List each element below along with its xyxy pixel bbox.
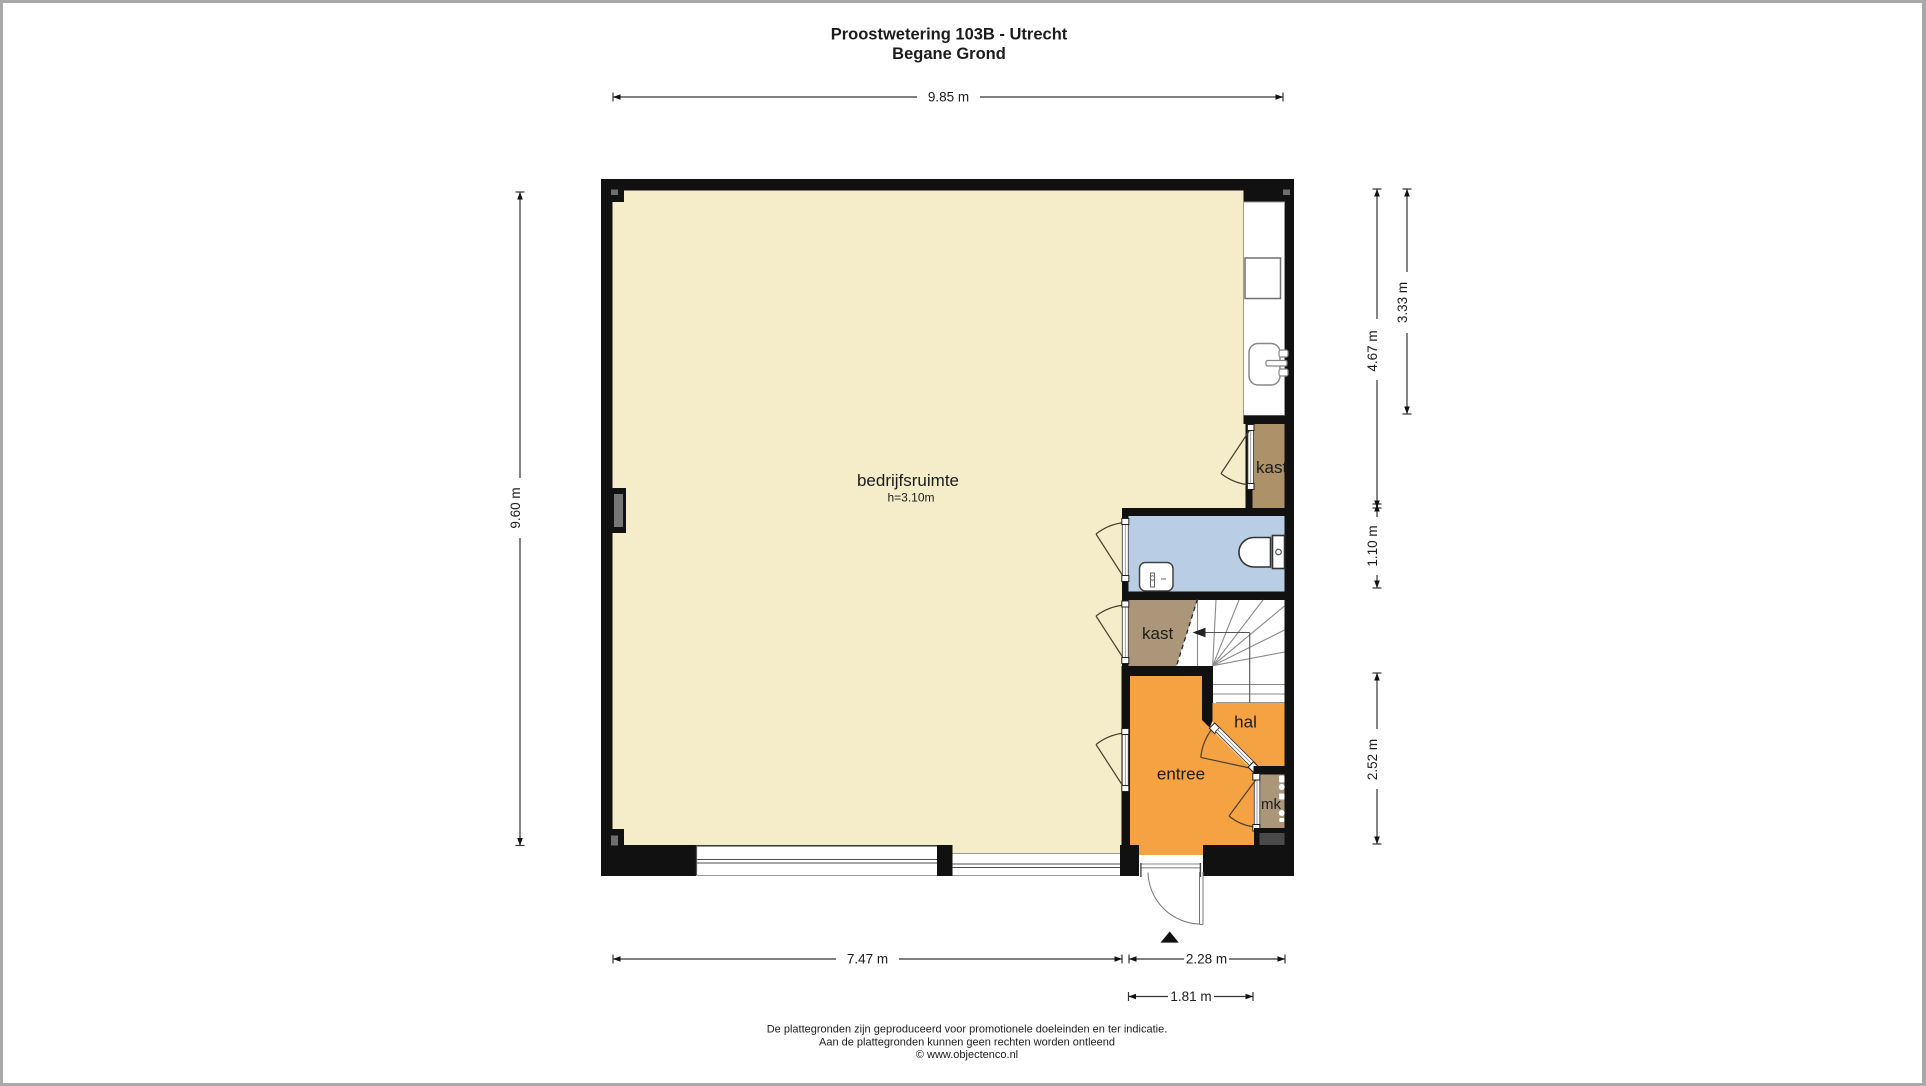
svg-text:Proostwetering 103B - Utrecht: Proostwetering 103B - Utrecht (831, 26, 1068, 44)
svg-text:mk: mk (1261, 796, 1281, 813)
svg-text:kast: kast (1142, 624, 1173, 643)
svg-text:7.47 m: 7.47 m (847, 952, 888, 967)
svg-text:Begane Grond: Begane Grond (892, 45, 1006, 63)
svg-text:entree: entree (1157, 765, 1205, 784)
svg-text:9.85 m: 9.85 m (928, 90, 969, 105)
svg-text:hal: hal (1234, 713, 1257, 732)
svg-text:© www.objectenco.nl: © www.objectenco.nl (916, 1049, 1018, 1061)
svg-text:9.60 m: 9.60 m (508, 487, 523, 528)
svg-text:1.10 m: 1.10 m (1365, 525, 1380, 566)
svg-text:bedrijfsruimte: bedrijfsruimte (857, 471, 959, 490)
svg-text:2.28 m: 2.28 m (1186, 952, 1227, 967)
svg-text:1.81 m: 1.81 m (1170, 989, 1211, 1004)
svg-text:h=3.10m: h=3.10m (887, 491, 934, 505)
svg-text:Aan de plattegronden kunnen ge: Aan de plattegronden kunnen geen rechten… (819, 1037, 1115, 1049)
svg-text:3.33 m: 3.33 m (1395, 282, 1410, 323)
svg-text:De plattegronden zijn geproduc: De plattegronden zijn geproduceerd voor … (767, 1024, 1168, 1036)
svg-text:kast: kast (1256, 458, 1287, 477)
svg-text:4.67 m: 4.67 m (1365, 330, 1380, 371)
svg-text:2.52 m: 2.52 m (1365, 739, 1380, 780)
